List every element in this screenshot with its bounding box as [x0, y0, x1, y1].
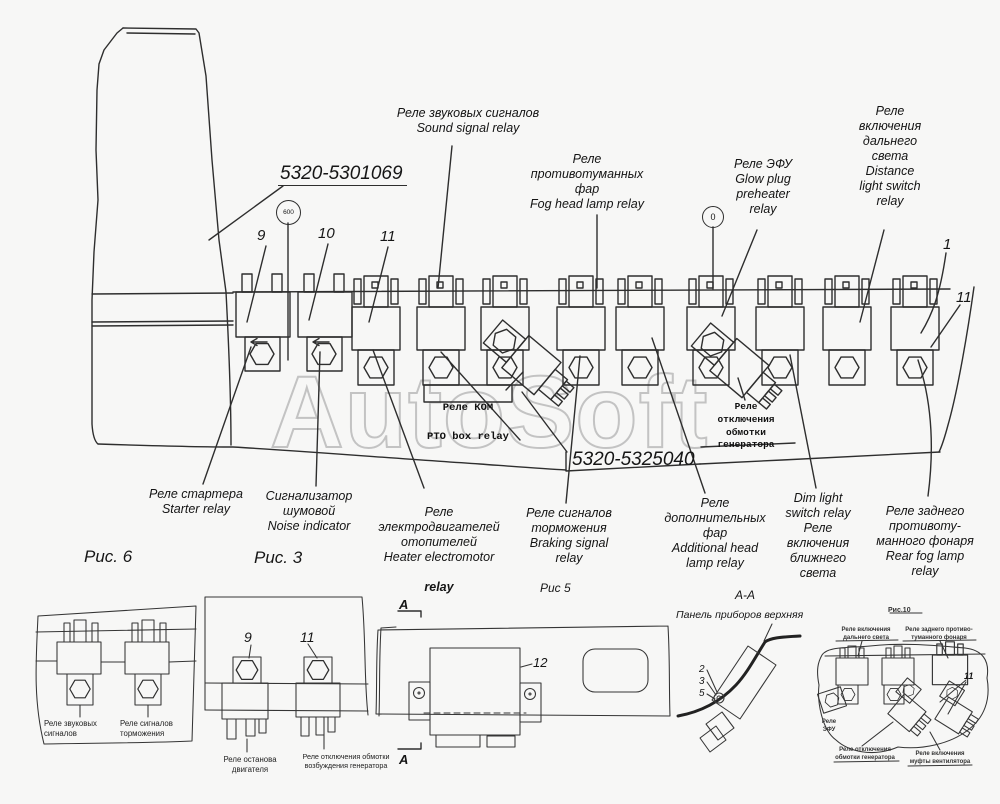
- section-number-3: 3: [699, 677, 705, 687]
- section-number-2: 2: [699, 665, 705, 675]
- fig3-label-excitation-cutoff: Реле отключения обмотки возбуждения гене…: [294, 752, 398, 770]
- fig10-label-rear-fog: Реле заднего противо- туманного фонаря: [900, 627, 978, 643]
- fig10-label-efu: Реле ЭФУ: [817, 719, 841, 735]
- relay: [823, 276, 871, 385]
- item-number-10: 10: [318, 226, 335, 241]
- fig5-caption: Рис 5: [540, 582, 571, 594]
- fig3-number-9: 9: [244, 630, 252, 644]
- relay: [756, 276, 804, 385]
- relay: [891, 276, 939, 385]
- part-number-lower: 5320-5325040: [572, 450, 695, 469]
- fig3-label-engine-stop: Реле останова двигателя: [214, 755, 286, 774]
- label-starter-relay: Реле стартера Starter relay: [136, 487, 256, 517]
- label-glow-plug-preheater-relay: Реле ЭФУ Glow plug preheater relay: [713, 157, 813, 217]
- fig10-number-11: 11: [964, 672, 973, 681]
- label-noise-indicator: Сигнализатор шумовой Noise indicator: [252, 489, 366, 534]
- item-number-11b: 11: [956, 290, 972, 305]
- item-number-12: 12: [533, 656, 547, 669]
- bracket-section-art: [376, 611, 670, 749]
- label-additional-head-lamp-relay: Реле дополнительных фар Additional head …: [651, 496, 779, 571]
- cab-panel-outline: [92, 28, 231, 445]
- label-rear-fog-lamp-relay: Реле заднего противоту- манного фонаря R…: [860, 504, 990, 579]
- fig10-label-distance-light: Реле включения дальнего света: [834, 627, 898, 643]
- fig10-caption: Рис.10: [888, 606, 911, 615]
- aa-section-art: [678, 624, 800, 752]
- fig3-number-11: 11: [300, 630, 315, 644]
- label-sound-signal-relay: Реле звуковых сигналов Sound signal rela…: [388, 106, 548, 136]
- fig3-caption: Рис. 3: [254, 549, 302, 566]
- label-dim-light-switch-relay: Dim light switch relay Реле включения бл…: [774, 491, 862, 581]
- fig3-art: [205, 597, 396, 752]
- section-arrow-top: А: [399, 598, 408, 611]
- marker-0: 0: [702, 206, 724, 228]
- section-arrow-bottom: А: [399, 753, 408, 766]
- label-pto-box-relay: Реле КОМ PTO box relay: [418, 387, 518, 444]
- fig6-label-sound: Реле звуковых сигналов: [44, 719, 114, 738]
- item-number-11: 11: [380, 229, 396, 244]
- label-heater-electromotor-relay: Реле электродвигателей отопителей Heater…: [372, 490, 506, 595]
- marker-600: 600: [276, 200, 301, 225]
- fig6-label-braking: Реле сигналов торможения: [120, 719, 192, 738]
- label-distance-light-switch-relay: Реле включения дальнего света Distance l…: [845, 104, 935, 209]
- section-number-5: 5: [699, 689, 705, 699]
- fig10-label-gen-cutoff: Реле отключения обмотки генератора: [831, 747, 899, 763]
- relay-installation-drawing: AutoSoft: [0, 0, 1000, 804]
- label-fog-head-lamp-relay: Реле противотуманных фар Fog head lamp r…: [517, 152, 657, 212]
- fig6-caption: Рис. 6: [84, 548, 132, 565]
- item-number-9: 9: [257, 228, 265, 243]
- aa-caption: А-А: [735, 589, 755, 601]
- fig10-label-fan-clutch: Реле включения муфты вентилятора: [906, 751, 974, 767]
- label-generator-winding-cutoff-relay: Реле отключения обмотки генератора: [696, 401, 796, 452]
- part-number-upper: 5320-5301069: [278, 164, 407, 186]
- item-number-1: 1: [943, 237, 951, 252]
- label-braking-signal-relay: Реле сигналов торможения Braking signal …: [512, 506, 626, 566]
- upper-panel-label: Панель приборов верхняя: [676, 610, 803, 621]
